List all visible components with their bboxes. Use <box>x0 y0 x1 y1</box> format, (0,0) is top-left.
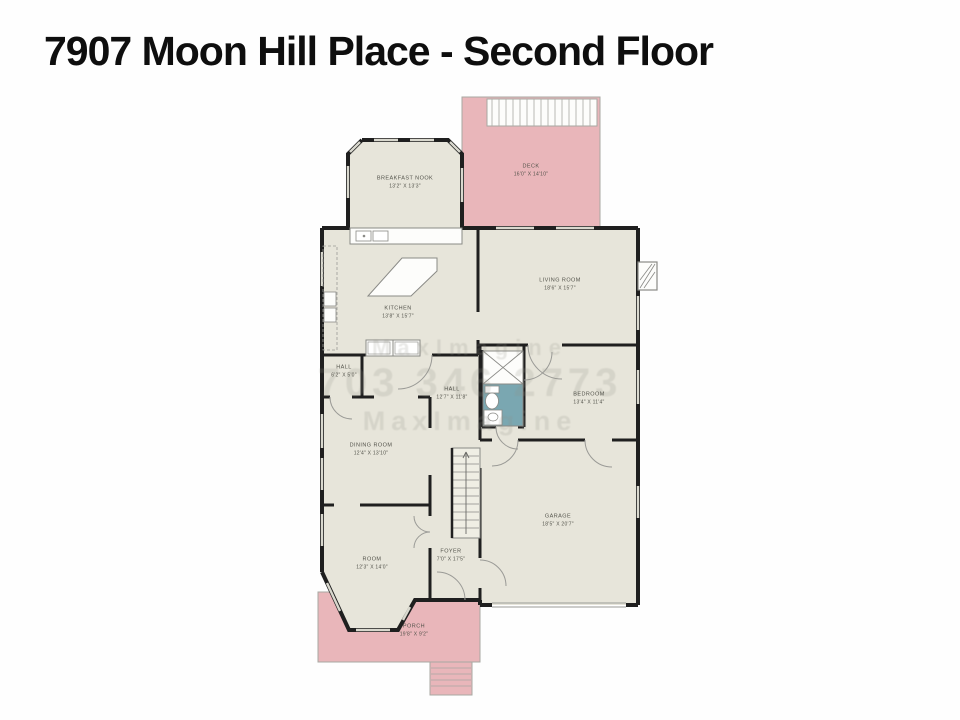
sink-faucet <box>363 235 366 238</box>
deck-area <box>462 97 600 228</box>
floorplan-drawing <box>0 0 960 720</box>
hall-closets <box>366 340 420 356</box>
fireplace <box>638 262 657 290</box>
toilet-bowl <box>486 393 499 409</box>
vanity <box>484 410 502 425</box>
floorplan-page: MaxImagine 703 346 2773 MaxImagine 7907 … <box>0 0 960 720</box>
bathroom <box>483 351 523 426</box>
closet-box-1 <box>368 342 390 354</box>
page-title: 7907 Moon Hill Place - Second Floor <box>44 28 713 75</box>
appliance-1 <box>324 292 336 306</box>
sink-bowl-right <box>373 231 388 241</box>
appliance-2 <box>324 308 336 322</box>
porch-steps <box>430 662 472 695</box>
toilet-tank <box>485 386 499 393</box>
stairs <box>452 448 480 538</box>
deck-stairs <box>487 99 597 126</box>
closet-box-2 <box>395 342 418 354</box>
breakfast-nook-floor <box>348 140 462 228</box>
